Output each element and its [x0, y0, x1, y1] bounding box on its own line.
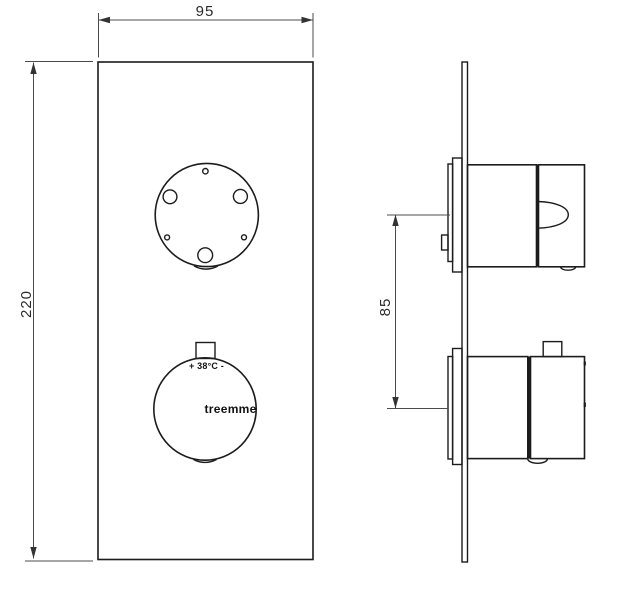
side-upper-handle [442, 158, 585, 272]
front-view: + 38°C - treemme [98, 62, 313, 560]
upper-knob-dot-lower-left [165, 235, 170, 240]
temperature-label: + 38°C - [189, 361, 224, 371]
technical-drawing: + 38°C - treemme [0, 0, 623, 603]
upper-knob-dot-lower-right [242, 235, 247, 240]
dimension-spacing: 85 [377, 215, 450, 409]
upper-knob-hole-left [163, 190, 177, 204]
spacing-dim-label: 85 [377, 298, 394, 317]
upper-body [468, 165, 537, 267]
upper-grip [539, 165, 585, 267]
side-lower-handle [448, 342, 585, 465]
upper-side-tab [442, 235, 448, 250]
brand-logo: treemme [205, 402, 257, 416]
lower-grip [531, 357, 585, 459]
width-arrow-right [302, 17, 314, 23]
spacing-arrow-bottom [392, 397, 398, 409]
height-arrow-top [30, 63, 36, 75]
lower-knob-top-tab [196, 343, 215, 359]
spacing-arrow-top [392, 215, 398, 227]
upper-grip-lever-profile [538, 202, 569, 229]
front-lower-knob: + 38°C - treemme [154, 343, 257, 463]
lower-flange [453, 349, 462, 465]
width-dim-label: 95 [196, 3, 215, 20]
side-plate [462, 62, 468, 562]
lower-bottom-detail [528, 459, 548, 463]
height-arrow-bottom [30, 547, 36, 559]
drawing-svg: + 38°C - treemme [0, 0, 623, 603]
width-arrow-left [99, 17, 111, 23]
side-view [442, 62, 585, 562]
front-plate [98, 62, 313, 560]
lower-flange-step [448, 357, 453, 460]
lower-body [468, 357, 528, 459]
upper-knob-hole-right [233, 189, 247, 203]
lower-top-tab [543, 342, 562, 357]
front-upper-knob [155, 163, 258, 269]
dimension-width: 95 [99, 3, 314, 58]
upper-flange [453, 158, 462, 272]
upper-knob-dot-top [203, 169, 208, 174]
dimension-height: 220 [18, 62, 93, 562]
height-dim-label: 220 [18, 290, 35, 318]
upper-knob-circle [155, 163, 258, 266]
upper-knob-hole-bottom [198, 248, 213, 263]
